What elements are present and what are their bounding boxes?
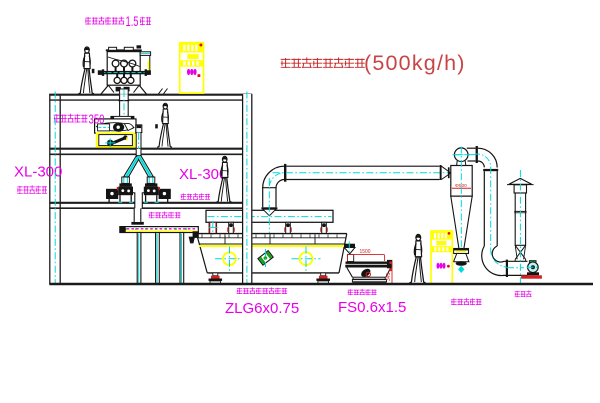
svg-text:(500kg/h): (500kg/h)	[364, 51, 466, 75]
svg-text:FS0.6x1.5: FS0.6x1.5	[338, 299, 406, 316]
svg-text:350: 350	[89, 112, 105, 127]
svg-text:345: 345	[386, 272, 392, 281]
svg-text:1.5: 1.5	[126, 14, 139, 29]
svg-text:XL-300: XL-300	[179, 166, 227, 183]
svg-text:1500: 1500	[360, 249, 371, 255]
svg-text:ZLG6x0.75: ZLG6x0.75	[225, 300, 299, 317]
